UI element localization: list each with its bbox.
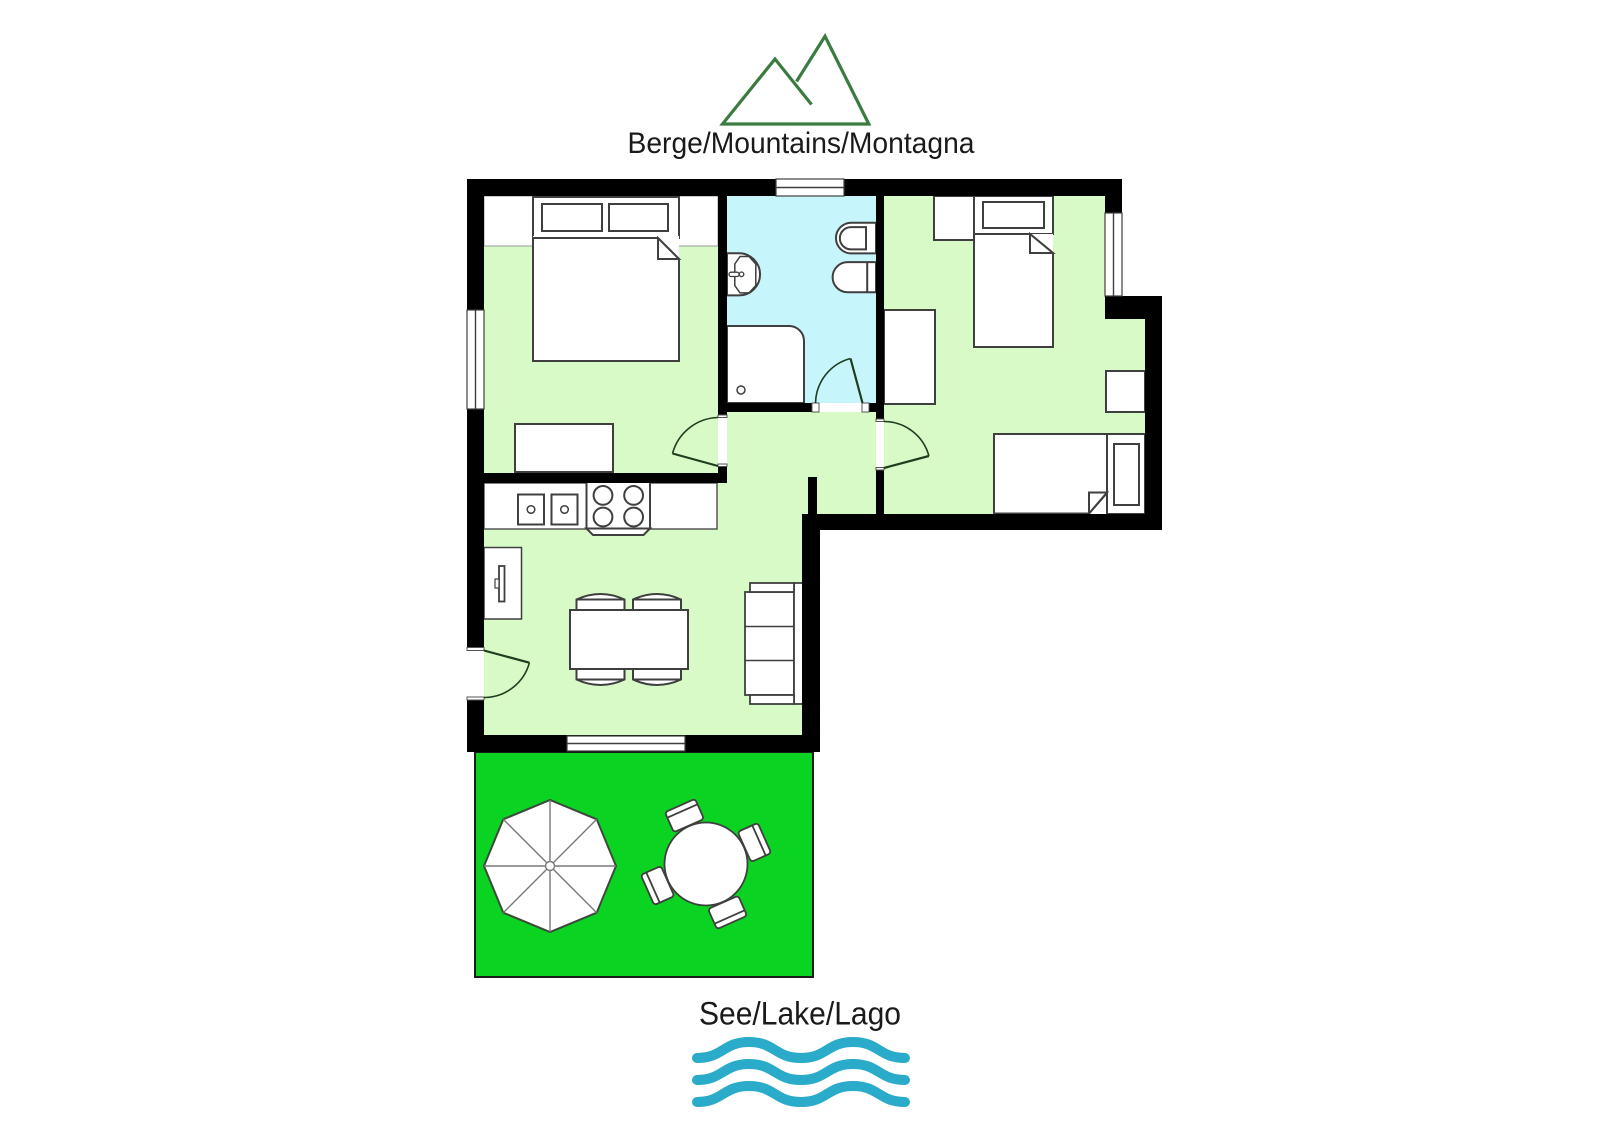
svg-text:Berge/Mountains/Montagna: Berge/Mountains/Montagna bbox=[628, 127, 975, 160]
svg-text:See/Lake/Lago: See/Lake/Lago bbox=[699, 996, 901, 1032]
